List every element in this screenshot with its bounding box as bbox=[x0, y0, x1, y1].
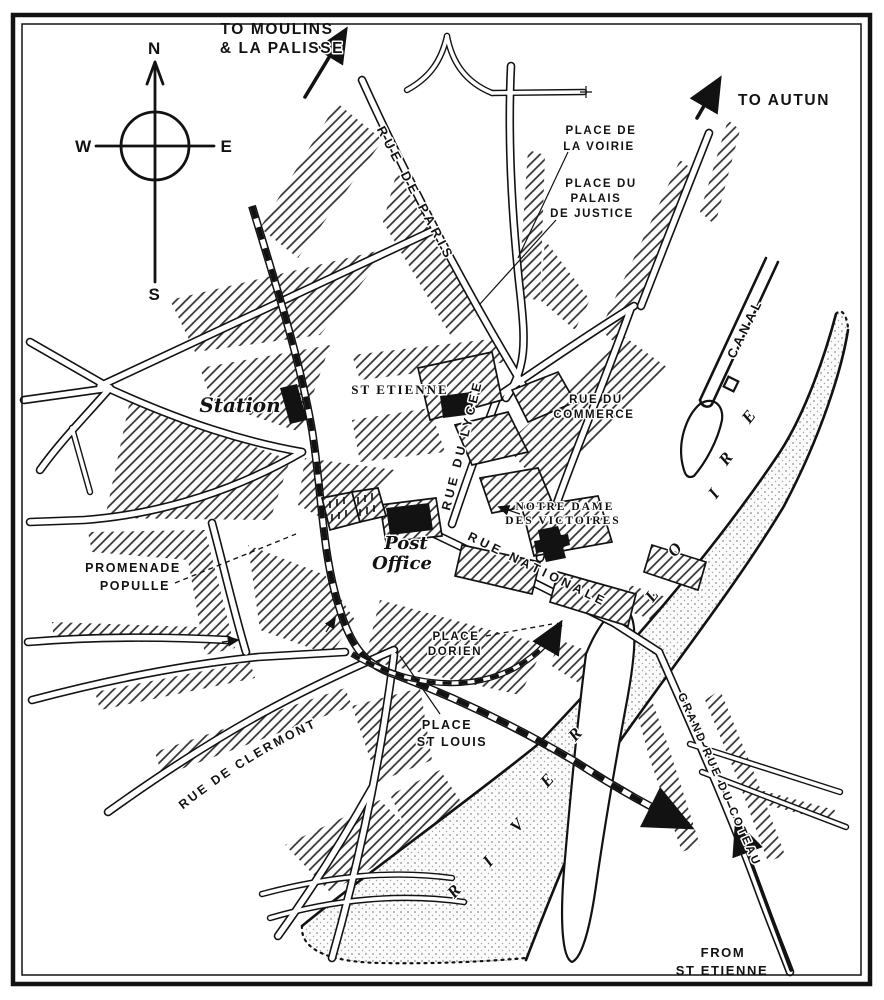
compass-e: E bbox=[221, 137, 234, 156]
place-dorien-label: PLACE bbox=[433, 631, 480, 643]
promenade-label: PROMENADE bbox=[85, 561, 181, 575]
place-st-louis-label: PLACE bbox=[422, 718, 472, 732]
compass-n: N bbox=[148, 39, 162, 58]
compass-w: W bbox=[75, 137, 93, 156]
rue-du-commerce-label: RUE DU bbox=[569, 394, 623, 406]
place-palais-label: PALAIS bbox=[571, 193, 622, 205]
notre-dame-label: DES VICTOIRES bbox=[505, 515, 620, 527]
to-autun-label: TO AUTUN bbox=[738, 92, 830, 109]
from-st-etienne-label: FROM bbox=[701, 945, 746, 960]
to-moulins-label: & LA PALISSE bbox=[220, 40, 344, 57]
notre-dame-label: NOTRE DAME bbox=[516, 501, 615, 513]
st-etienne-label: ST ETIENNE bbox=[351, 382, 448, 397]
place-dorien-label: DORIEN bbox=[428, 646, 482, 658]
place-st-louis-label: ST LOUIS bbox=[417, 735, 487, 749]
place-voirie-label: LA VOIRIE bbox=[563, 141, 634, 153]
compass-s: S bbox=[149, 285, 162, 304]
rue-du-commerce-label: COMMERCE bbox=[553, 409, 634, 421]
map-page: N S W E TO MOULINS & LA PALISSE TO AUTUN… bbox=[0, 0, 884, 1000]
town-map-svg: N S W E TO MOULINS & LA PALISSE TO AUTUN… bbox=[0, 0, 884, 1000]
place-palais-label: PLACE DU bbox=[565, 178, 637, 190]
post-office-label: Office bbox=[372, 553, 432, 574]
station-label: Station bbox=[199, 393, 280, 417]
promenade-label: POPULLE bbox=[100, 579, 170, 593]
post-office-label: Post bbox=[383, 533, 428, 554]
place-palais-label: DE JUSTICE bbox=[550, 208, 634, 220]
place-voirie-label: PLACE DE bbox=[566, 125, 637, 137]
post-office-building bbox=[386, 503, 433, 535]
